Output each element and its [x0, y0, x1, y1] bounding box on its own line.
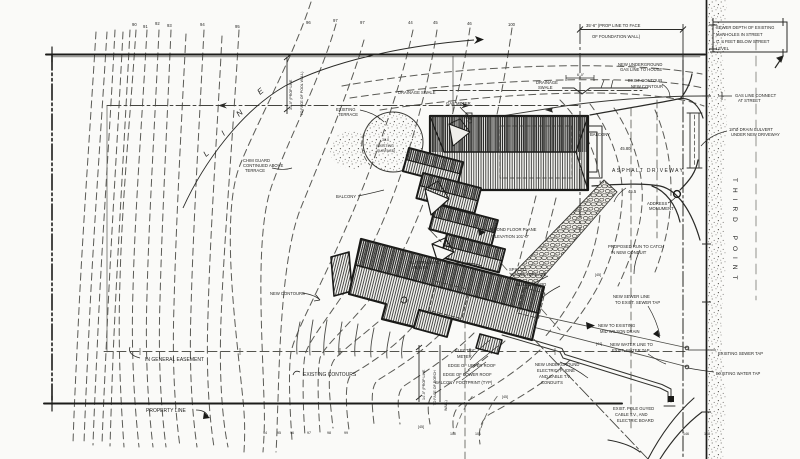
svg-text:TO EXIST. SEWER TAP: TO EXIST. SEWER TAP [615, 300, 660, 305]
svg-text:MID WILSON DRAIN: MID WILSON DRAIN [600, 329, 640, 334]
svg-text:TERRACE: TERRACE [245, 168, 265, 173]
svg-text:AT STREET: AT STREET [738, 98, 761, 103]
svg-text:THIRD POINT: THIRD POINT [731, 178, 738, 286]
svg-text:94: 94 [200, 22, 205, 27]
svg-text:94: 94 [263, 431, 267, 435]
svg-text:BALCONY: BALCONY [336, 194, 356, 199]
svg-text:EXISTING CONTOURS: EXISTING CONTOURS [303, 372, 357, 378]
svg-text:100: 100 [508, 22, 516, 27]
svg-text:EDGE OF UPPER ROOF: EDGE OF UPPER ROOF [448, 363, 496, 368]
svg-text:EXISTING WATER TAP: EXISTING WATER TAP [716, 371, 760, 376]
svg-text:NEW CONTOUR: NEW CONTOUR [631, 84, 663, 89]
svg-text:[45]: [45] [595, 273, 601, 277]
svg-text:ELEVATION 101'-0": ELEVATION 101'-0" [492, 234, 530, 239]
svg-text:BALCONY FOOTPRINT (TYP): BALCONY FOOTPRINT (TYP) [435, 380, 493, 385]
svg-text:MANHOLES IN STREET: MANHOLES IN STREET [716, 32, 763, 37]
svg-text:97: 97 [360, 20, 365, 25]
svg-text:CONDUITS: CONDUITS [541, 380, 563, 385]
svg-text:SEALER: SEALER [412, 265, 429, 270]
svg-text:AND CABLE T.V.: AND CABLE T.V. [539, 374, 571, 379]
svg-text:CABLE T.V., AND: CABLE T.V., AND [615, 412, 648, 417]
svg-text:90: 90 [132, 22, 137, 27]
svg-text:WALL): WALL) [444, 400, 448, 411]
svg-text:100: 100 [450, 432, 456, 436]
svg-text:SURFACE): SURFACE) [377, 149, 395, 153]
svg-text:96: 96 [290, 431, 294, 435]
svg-text:IN GENERAL EASEMENT: IN GENERAL EASEMENT [145, 357, 204, 363]
svg-text:SEWER DEPTH OF EXISTING: SEWER DEPTH OF EXISTING [716, 25, 774, 30]
svg-text:TO FACE OF PORCH: TO FACE OF PORCH [433, 370, 437, 406]
svg-text:91: 91 [143, 24, 148, 29]
svg-text:ELECTRIC: ELECTRIC [455, 348, 476, 353]
svg-text:38.0: 38.0 [382, 138, 389, 142]
svg-text:NEW SEWER LINE: NEW SEWER LINE [613, 294, 650, 299]
svg-text:NEW WATER LINE TO: NEW WATER LINE TO [610, 342, 654, 347]
svg-text:EXIST. WATER TAP: EXIST. WATER TAP [612, 348, 650, 353]
svg-text:PROPERTY LINE: PROPERTY LINE [146, 408, 186, 414]
svg-text:DRAINAGE SWALE: DRAINAGE SWALE [398, 90, 436, 95]
svg-text:101: 101 [475, 432, 481, 436]
svg-text:45.80: 45.80 [620, 146, 631, 151]
svg-text:NEW TO EXISTING: NEW TO EXISTING [598, 323, 635, 328]
svg-text:METER: METER [457, 354, 472, 359]
svg-text:92: 92 [155, 21, 160, 26]
svg-text:45: 45 [433, 20, 438, 25]
svg-text:(EXISTING: (EXISTING [376, 144, 394, 148]
svg-text:EXIST CONTOUR: EXIST CONTOUR [628, 78, 662, 83]
svg-text:EDGE OF LOWER ROOF: EDGE OF LOWER ROOF [443, 372, 492, 377]
svg-text:46: 46 [467, 21, 472, 26]
svg-text:14'-0" (PROP LINE: 14'-0" (PROP LINE [422, 369, 426, 400]
svg-text:NEW UNDERGROUND: NEW UNDERGROUND [535, 362, 579, 367]
svg-text:ELECTRIC, PHONE: ELECTRIC, PHONE [537, 368, 575, 373]
svg-text:TERRACE: TERRACE [338, 112, 358, 117]
svg-text:146: 146 [683, 432, 689, 436]
svg-text:95: 95 [235, 24, 240, 29]
svg-text:BALCONY: BALCONY [590, 132, 610, 137]
svg-text:44: 44 [408, 20, 413, 25]
svg-text:GAS LINE TO HOUSE: GAS LINE TO HOUSE [620, 67, 662, 72]
svg-text:ELECTRIC BOARD: ELECTRIC BOARD [617, 418, 654, 423]
svg-text:UNDER NEW DRIVEWAY: UNDER NEW DRIVEWAY [731, 132, 780, 137]
svg-text:MONUMENT: MONUMENT [649, 206, 674, 211]
svg-text:EXISTING SEWER TAP: EXISTING SEWER TAP [718, 351, 763, 356]
svg-text:IN NEW CONDUIT: IN NEW CONDUIT [611, 250, 647, 255]
svg-text:OF FOUNDATION WALL): OF FOUNDATION WALL) [592, 34, 641, 39]
svg-text:EXIST. POLE GUYED: EXIST. POLE GUYED [613, 406, 654, 411]
svg-text:97: 97 [333, 18, 338, 23]
svg-text:[45]: [45] [418, 425, 424, 429]
svg-text:ASPHALT DRIVEWAY: ASPHALT DRIVEWAY [612, 168, 684, 174]
svg-text:PROPOSED RUN TO CATCH: PROPOSED RUN TO CATCH [608, 244, 664, 249]
svg-text:SWALE: SWALE [538, 85, 553, 90]
svg-text:GLASS GUARD: GLASS GUARD [516, 282, 546, 287]
svg-text:93: 93 [167, 23, 172, 28]
svg-text:98: 98 [327, 431, 331, 435]
svg-text:[45]: [45] [502, 395, 508, 399]
svg-text:6'-0": 6'-0" [577, 73, 585, 77]
svg-text:C. 8 FEET BELOW STREET: C. 8 FEET BELOW STREET [716, 39, 770, 44]
svg-text:STONE TERRACE: STONE TERRACE [511, 272, 547, 277]
svg-text:45.5: 45.5 [628, 189, 637, 194]
svg-text:96: 96 [306, 20, 311, 25]
svg-text:NEW CONTOURS: NEW CONTOURS [270, 291, 305, 296]
svg-text:148: 148 [704, 432, 710, 436]
svg-text:35'-6" (PROP LINE TO FACE: 35'-6" (PROP LINE TO FACE [586, 23, 641, 28]
svg-text:[44]: [44] [596, 342, 602, 346]
svg-text:95: 95 [277, 431, 281, 435]
svg-text:GAS METER: GAS METER [446, 101, 471, 106]
svg-text:SECOND FLOOR PLANE: SECOND FLOOR PLANE [488, 227, 537, 232]
svg-text:97: 97 [307, 431, 311, 435]
svg-text:LEVEL: LEVEL [716, 46, 730, 51]
svg-text:99: 99 [344, 431, 348, 435]
